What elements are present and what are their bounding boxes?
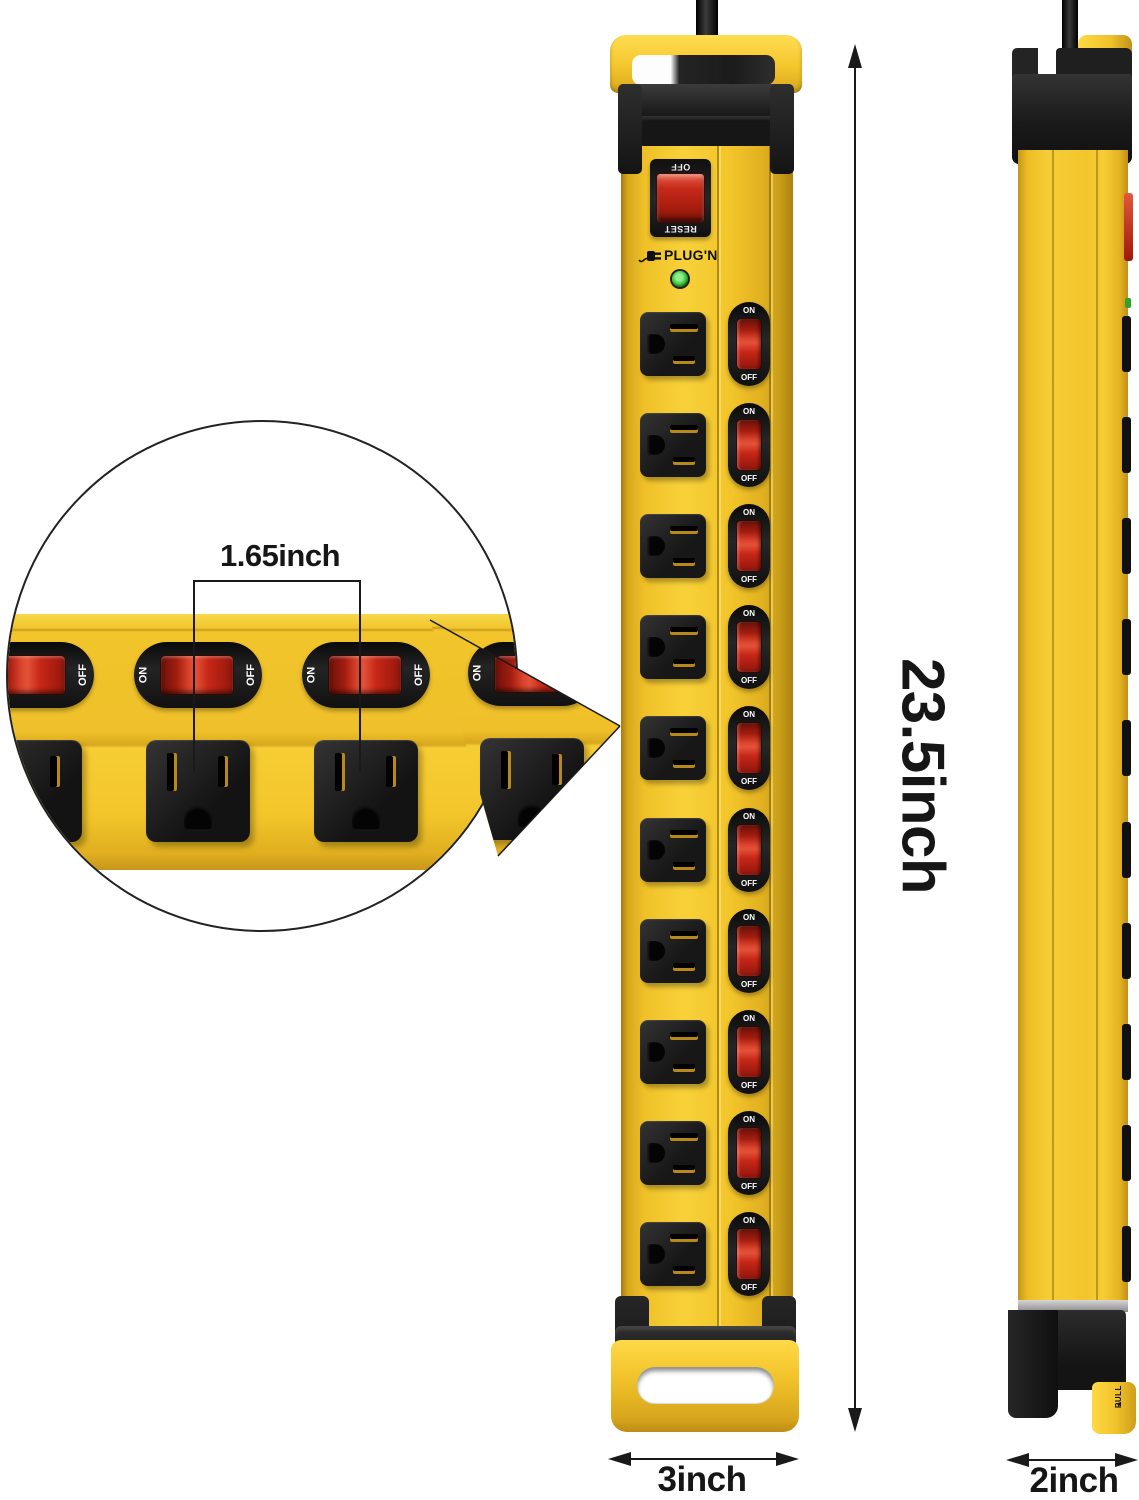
- pull-tab-label: PULL: [1114, 1385, 1123, 1408]
- switch-side-profile: [1122, 720, 1131, 776]
- outlet-spacing-label: 1.65inch: [220, 538, 340, 574]
- switch-side-profile: [1122, 822, 1131, 878]
- switch-side-profile: [1122, 316, 1131, 372]
- bracket-side-bottom-leg: [1008, 1310, 1058, 1418]
- depth-dimension-label: 2inch: [1030, 1461, 1119, 1500]
- switch-side-profiles: [0, 0, 1139, 1500]
- height-dimension-label: 23.5inch: [889, 658, 958, 894]
- switch-side-profile: [1122, 1226, 1131, 1282]
- switch-side-profile: [1122, 1024, 1131, 1080]
- switch-side-profile: [1122, 619, 1131, 675]
- product-dimension-diagram: ONOFFONOFFONOFFONOFF ONOFFONOFFONOFFONOF…: [0, 0, 1139, 1500]
- switch-side-profile: [1122, 1125, 1131, 1181]
- side-view: ▲ PULL: [0, 0, 1139, 1500]
- switch-side-profile: [1122, 518, 1131, 574]
- width-dimension-label: 3inch: [658, 1460, 747, 1500]
- pull-tab: ▲ PULL: [1092, 1382, 1136, 1434]
- switch-side-profile: [1122, 417, 1131, 473]
- switch-side-profile: [1122, 923, 1131, 979]
